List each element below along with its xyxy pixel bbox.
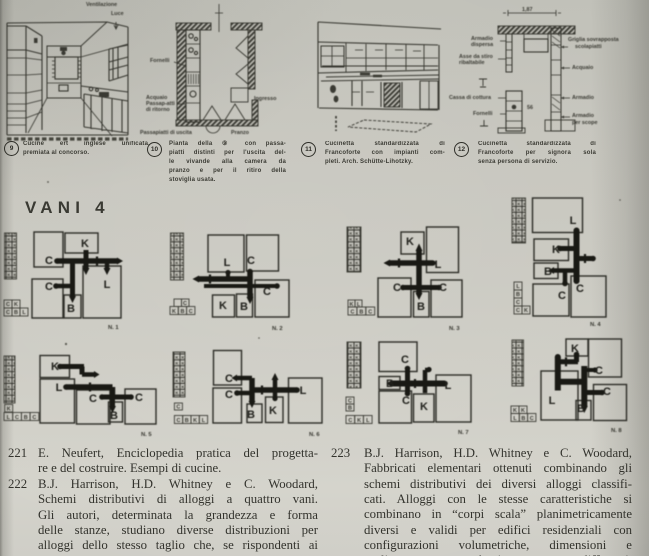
svg-text:Armadio: Armadio — [572, 113, 595, 119]
svg-text:L: L — [224, 257, 231, 269]
svg-text:C: C — [183, 301, 187, 307]
svg-text:K: K — [81, 238, 89, 250]
svg-text:Ingresso: Ingresso — [254, 96, 277, 102]
svg-text:Armadio: Armadio — [572, 95, 595, 101]
svg-text:C: C — [247, 255, 255, 267]
svg-text:Luce: Luce — [111, 11, 124, 17]
svg-text:L: L — [435, 259, 442, 271]
svg-text:C: C — [263, 286, 271, 298]
svg-text:per scope: per scope — [572, 120, 597, 126]
svg-text:Griglia sovrapposta: Griglia sovrapposta — [568, 37, 620, 43]
svg-text:Cassa di cottura: Cassa di cottura — [449, 95, 492, 101]
svg-text:C: C — [530, 416, 534, 422]
svg-text:C: C — [402, 395, 410, 407]
svg-text:K: K — [51, 361, 59, 373]
svg-text:K: K — [193, 418, 197, 424]
svg-text:C: C — [225, 373, 233, 385]
svg-text:K: K — [571, 343, 579, 355]
svg-text:L: L — [570, 215, 577, 227]
svg-text:B: B — [544, 266, 552, 278]
svg-text:B: B — [240, 301, 248, 313]
svg-text:B: B — [247, 409, 255, 421]
svg-text:N. 5: N. 5 — [141, 432, 152, 438]
svg-text:K: K — [406, 236, 414, 248]
svg-text:B: B — [359, 310, 363, 316]
svg-text:K: K — [14, 302, 18, 308]
svg-text:N. 6: N. 6 — [309, 432, 320, 438]
svg-text:C: C — [89, 393, 97, 405]
svg-text:L: L — [549, 395, 556, 407]
svg-text:L: L — [516, 284, 520, 290]
svg-text:B: B — [14, 310, 18, 316]
svg-text:C: C — [135, 392, 143, 404]
svg-text:K: K — [350, 302, 354, 308]
svg-text:B: B — [110, 410, 118, 422]
svg-text:ribaltabile: ribaltabile — [459, 60, 484, 66]
svg-text:L: L — [104, 279, 111, 291]
svg-text:B: B — [386, 378, 394, 390]
svg-text:B: B — [521, 416, 525, 422]
svg-text:K: K — [524, 308, 528, 314]
svg-text:L: L — [22, 310, 26, 316]
svg-text:Passapiatti di uscita: Passapiatti di uscita — [140, 130, 193, 136]
svg-text:B: B — [577, 403, 585, 415]
svg-text:C: C — [393, 282, 401, 294]
svg-text:L: L — [56, 382, 63, 394]
svg-text:Fornelli: Fornelli — [473, 111, 493, 117]
svg-text:N. 3: N. 3 — [449, 326, 460, 332]
svg-text:K: K — [269, 405, 277, 417]
svg-text:Pranzo: Pranzo — [231, 130, 250, 136]
svg-text:N. 7: N. 7 — [458, 430, 469, 436]
svg-text:N. 1: N. 1 — [108, 325, 119, 331]
svg-text:K: K — [172, 309, 176, 315]
svg-text:C: C — [439, 282, 447, 294]
svg-text:C: C — [401, 354, 409, 366]
svg-text:56: 56 — [527, 105, 533, 111]
svg-text:C: C — [351, 310, 355, 316]
svg-text:Fornelli: Fornelli — [150, 58, 170, 64]
svg-text:dispersa: dispersa — [471, 42, 494, 48]
svg-text:di ritorno: di ritorno — [146, 107, 170, 113]
svg-text:N. 8: N. 8 — [611, 428, 622, 434]
svg-text:C: C — [6, 310, 10, 316]
svg-text:K: K — [219, 300, 227, 312]
svg-text:K: K — [7, 407, 11, 413]
svg-text:C: C — [15, 415, 19, 421]
svg-text:C: C — [516, 308, 520, 314]
svg-text:K: K — [521, 408, 525, 414]
svg-text:B: B — [417, 301, 425, 313]
svg-text:L: L — [300, 385, 307, 397]
svg-text:K: K — [420, 401, 428, 413]
svg-text:B: B — [24, 415, 28, 421]
svg-text:N. 2: N. 2 — [272, 326, 283, 332]
svg-text:C: C — [558, 290, 566, 302]
svg-text:Acquaio: Acquaio — [572, 65, 594, 71]
svg-text:C: C — [595, 365, 603, 377]
svg-text:1,87: 1,87 — [522, 7, 533, 13]
svg-text:K: K — [513, 408, 517, 414]
svg-text:C: C — [348, 399, 352, 405]
svg-text:C: C — [177, 418, 181, 424]
svg-text:C: C — [176, 405, 180, 411]
svg-text:Ventilazione: Ventilazione — [86, 2, 117, 8]
svg-text:C: C — [516, 300, 520, 306]
svg-text:K: K — [552, 244, 560, 256]
svg-text:C: C — [576, 283, 584, 295]
svg-text:L: L — [445, 380, 452, 392]
svg-text:C: C — [603, 386, 611, 398]
svg-text:C: C — [368, 310, 372, 316]
svg-text:C: C — [189, 309, 193, 315]
svg-text:B: B — [67, 303, 75, 315]
svg-text:B: B — [516, 292, 520, 298]
svg-text:scolapiatti: scolapiatti — [575, 44, 602, 50]
svg-text:K: K — [357, 418, 361, 424]
svg-text:C: C — [6, 302, 10, 308]
svg-text:N. 4: N. 4 — [590, 322, 601, 328]
svg-text:B: B — [185, 418, 189, 424]
svg-text:B: B — [181, 309, 185, 315]
svg-text:B: B — [348, 406, 352, 412]
svg-text:C: C — [225, 389, 233, 401]
svg-text:C: C — [45, 281, 53, 293]
svg-text:C: C — [348, 418, 352, 424]
svg-text:C: C — [32, 415, 36, 421]
svg-text:C: C — [45, 255, 53, 267]
